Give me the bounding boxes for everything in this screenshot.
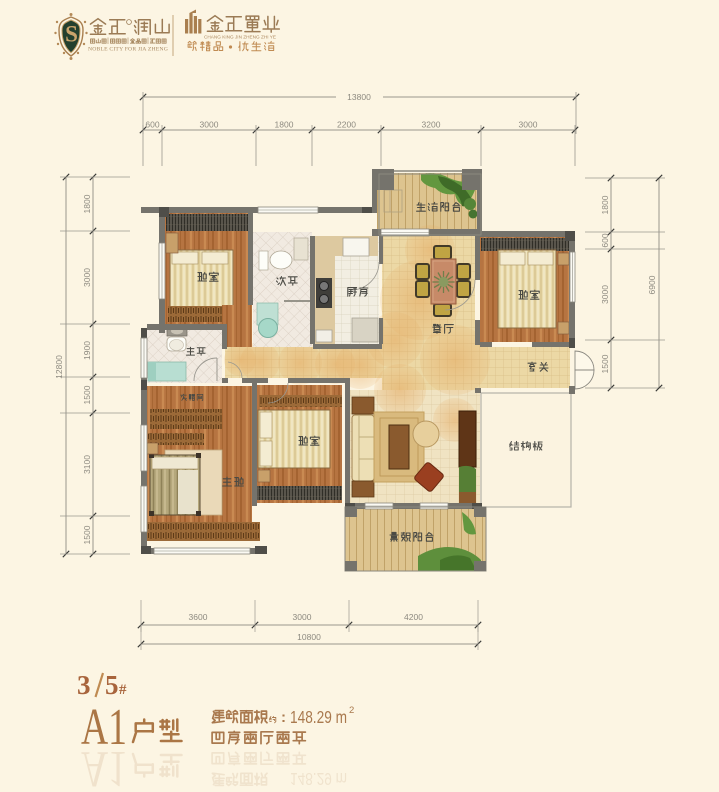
svg-text:3000: 3000: [82, 268, 92, 287]
svg-text:148.29 m: 148.29 m: [290, 707, 347, 727]
svg-text:1800: 1800: [600, 195, 610, 214]
svg-text:3000: 3000: [600, 285, 610, 304]
svg-text:3100: 3100: [82, 455, 92, 474]
svg-text:1900: 1900: [82, 341, 92, 360]
svg-text:4200: 4200: [404, 612, 423, 622]
svg-text:1800: 1800: [275, 120, 294, 130]
svg-text:1500: 1500: [82, 385, 92, 404]
svg-text:3600: 3600: [189, 612, 208, 622]
svg-text:S: S: [65, 22, 78, 47]
svg-text:600: 600: [145, 120, 159, 130]
svg-text:2: 2: [349, 705, 354, 716]
svg-text:3000: 3000: [293, 612, 312, 622]
svg-text::: :: [281, 709, 286, 726]
svg-text:CHANG KING JIN ZHENG ZHI YE: CHANG KING JIN ZHENG ZHI YE: [204, 35, 276, 40]
svg-text:3200: 3200: [422, 120, 441, 130]
svg-text:1500: 1500: [82, 525, 92, 544]
svg-text:13800: 13800: [347, 92, 371, 102]
svg-text:#: #: [119, 682, 127, 698]
svg-text:600: 600: [600, 233, 610, 247]
svg-text:148.29 m: 148.29 m: [290, 769, 347, 789]
svg-text:A1: A1: [81, 740, 127, 792]
svg-text:5: 5: [105, 670, 119, 700]
svg-text:2200: 2200: [337, 120, 356, 130]
svg-text:NOBLE CITY FOR JIA ZHENG: NOBLE CITY FOR JIA ZHENG: [88, 47, 168, 53]
svg-text:3000: 3000: [519, 120, 538, 130]
svg-text:1800: 1800: [82, 194, 92, 213]
svg-text:6900: 6900: [647, 275, 657, 294]
svg-text:10800: 10800: [297, 632, 321, 642]
svg-text:3: 3: [77, 670, 91, 700]
svg-text:1500: 1500: [600, 354, 610, 373]
svg-text:12800: 12800: [54, 355, 64, 379]
svg-text:3000: 3000: [200, 120, 219, 130]
